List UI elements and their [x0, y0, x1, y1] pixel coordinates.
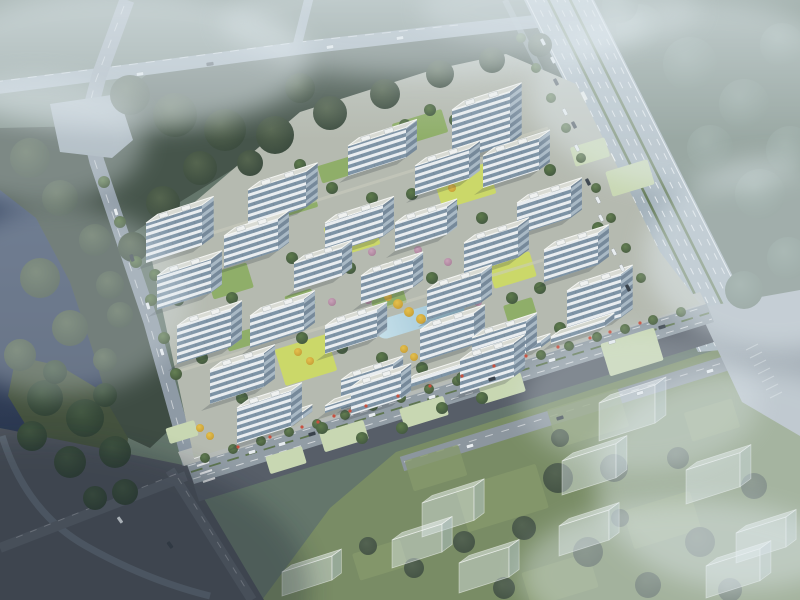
mist-cloud [520, 330, 760, 470]
tree [356, 432, 368, 444]
aerial-render [0, 0, 800, 600]
pedestrian [460, 374, 463, 377]
tree [476, 392, 488, 404]
tree [200, 453, 210, 463]
tree [237, 150, 263, 176]
pedestrian [300, 425, 303, 428]
pedestrian [492, 364, 495, 367]
tree [396, 422, 408, 434]
tree [453, 531, 475, 553]
tree [512, 516, 536, 540]
pedestrian [364, 404, 367, 407]
tree [368, 248, 376, 256]
pedestrian [556, 345, 559, 348]
tree [648, 315, 658, 325]
tree [426, 272, 438, 284]
pedestrian [638, 321, 641, 324]
tree [636, 273, 646, 283]
tree [410, 353, 418, 361]
tree [544, 164, 556, 176]
pedestrian [428, 384, 431, 387]
pedestrian [236, 445, 239, 448]
tree [444, 258, 452, 266]
tree [404, 307, 414, 317]
tree [436, 402, 448, 414]
tree [606, 213, 616, 223]
pedestrian [348, 409, 351, 412]
tree [359, 537, 377, 555]
tree [328, 298, 336, 306]
tree [170, 368, 182, 380]
tree [400, 345, 408, 353]
tree [294, 348, 302, 356]
tree [206, 432, 214, 440]
screenshot-root [0, 0, 800, 600]
tree [476, 212, 488, 224]
tree [316, 422, 328, 434]
pedestrian [316, 420, 319, 423]
pedestrian [396, 394, 399, 397]
tree [591, 183, 601, 193]
pedestrian [268, 435, 271, 438]
tree [196, 424, 204, 432]
tree [621, 243, 631, 253]
tree [306, 357, 314, 365]
pedestrian [332, 414, 335, 417]
tree [326, 182, 338, 194]
pedestrian [524, 354, 527, 357]
tree [506, 292, 518, 304]
tree [393, 299, 403, 309]
tree [183, 151, 217, 185]
